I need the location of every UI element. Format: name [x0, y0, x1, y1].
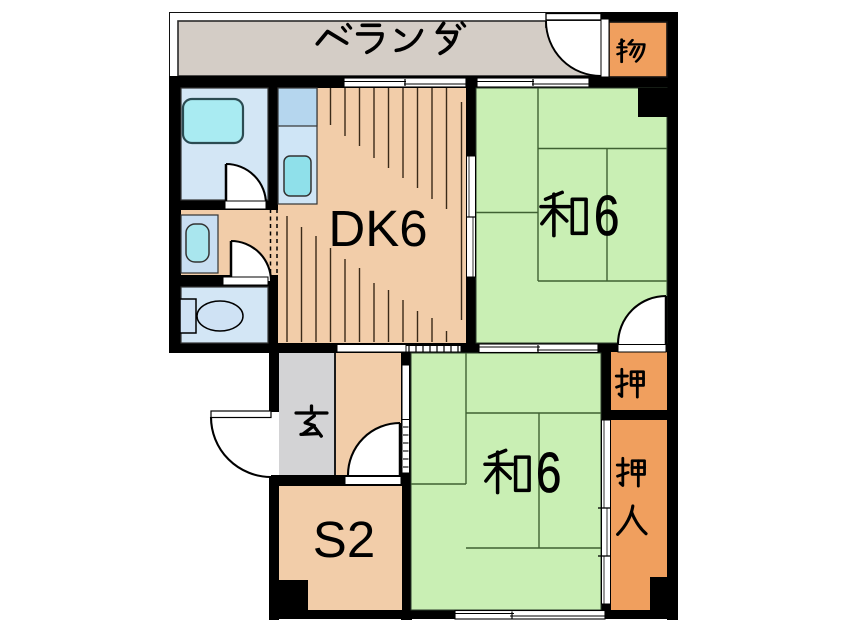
svg-text:S2: S2 — [313, 511, 375, 568]
svg-text:DK6: DK6 — [328, 200, 427, 257]
svg-text:6: 6 — [594, 183, 619, 247]
svg-text:6: 6 — [536, 440, 561, 504]
